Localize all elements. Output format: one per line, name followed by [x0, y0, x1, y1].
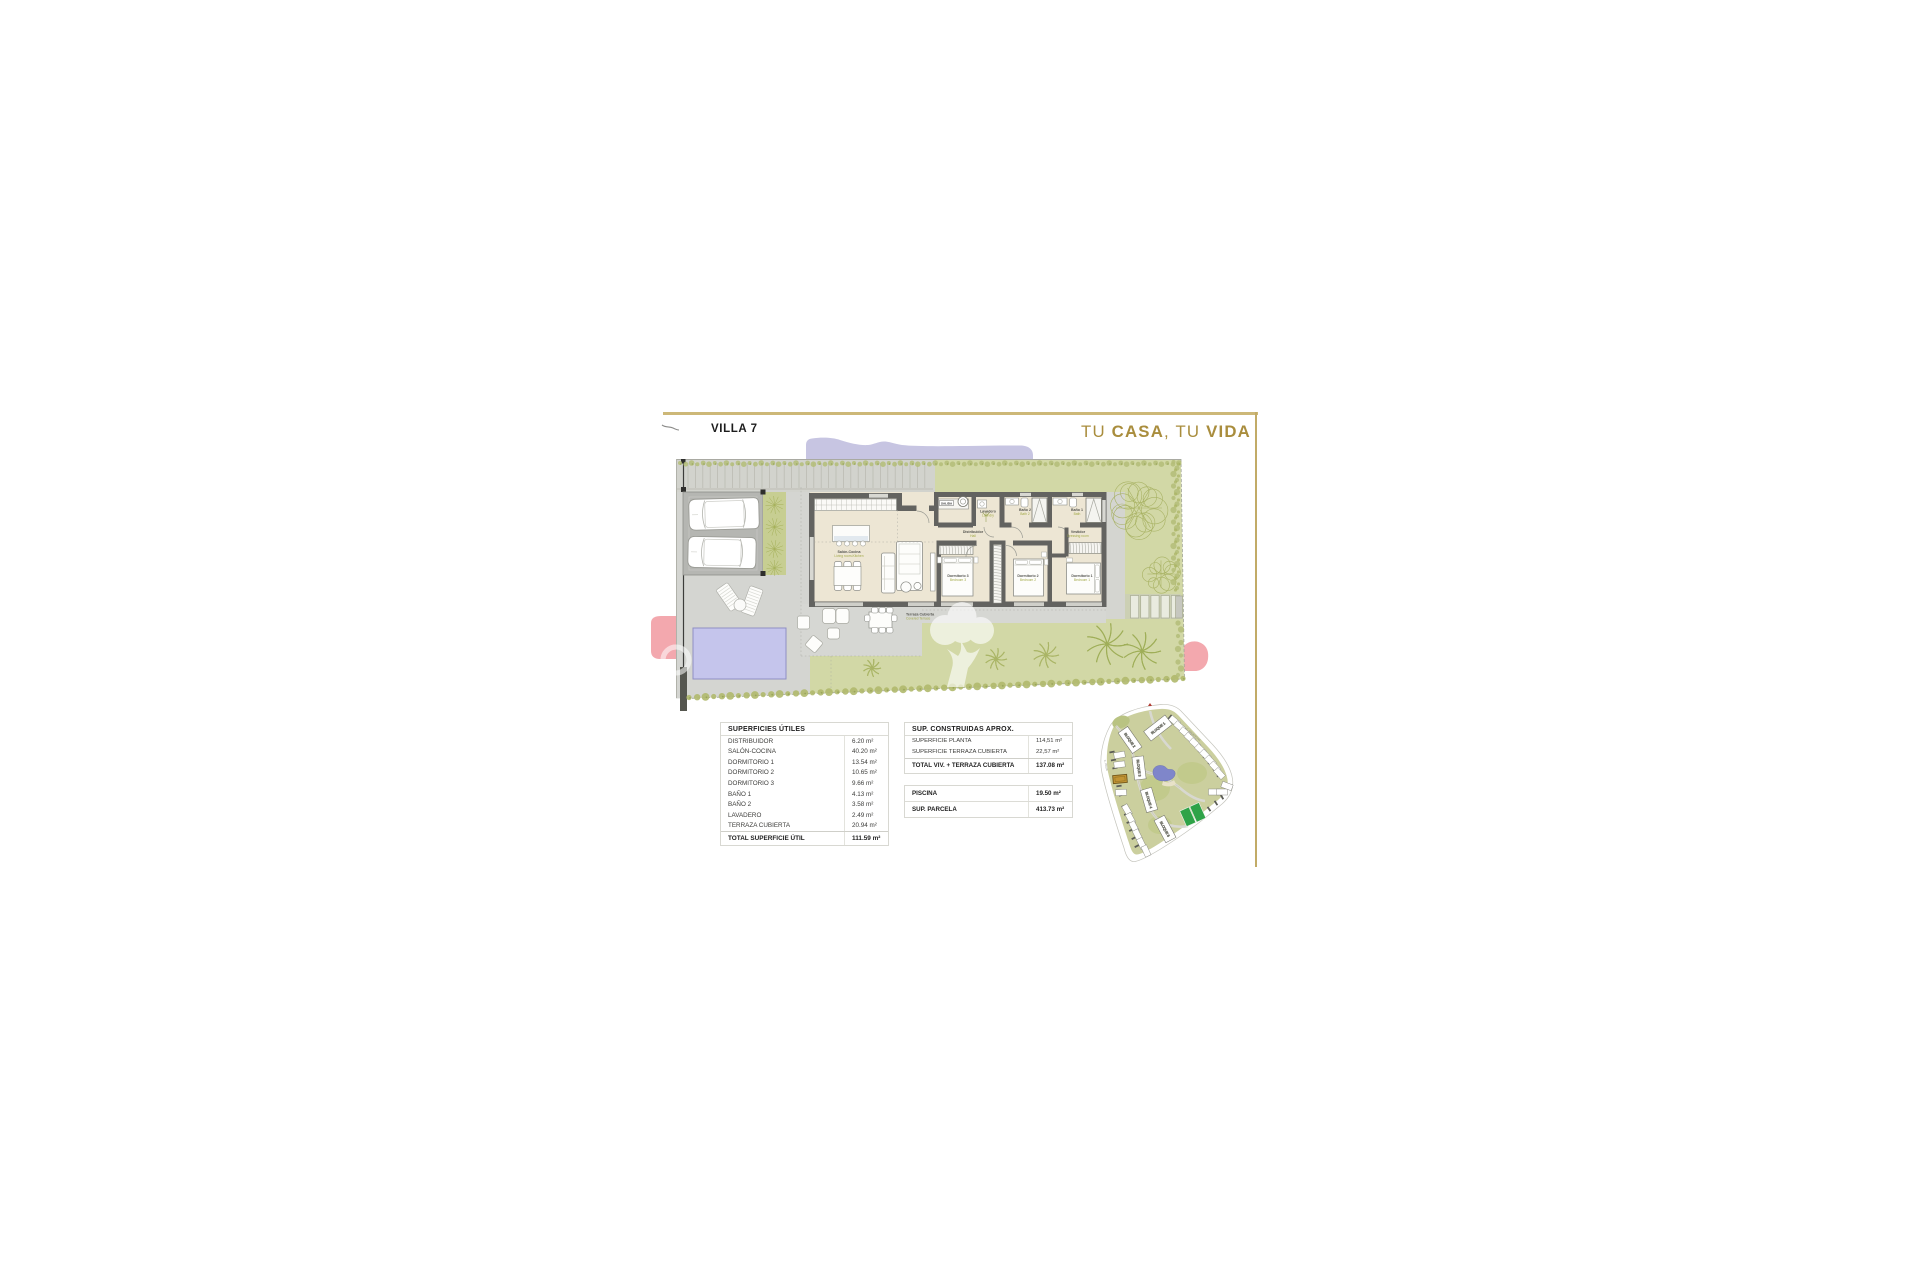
svg-text:Laundry: Laundry: [982, 514, 994, 518]
svg-text:Covered Terrace: Covered Terrace: [906, 617, 930, 621]
svg-text:Living room-Kitchen: Living room-Kitchen: [834, 554, 863, 558]
svg-text:Bath: Bath: [1074, 512, 1081, 516]
svg-text:Hall: Hall: [970, 534, 976, 538]
svg-text:Bedroom 3: Bedroom 3: [950, 578, 966, 582]
svg-text:Bath 2: Bath 2: [1020, 512, 1030, 516]
svg-text:Dressing room: Dressing room: [1067, 534, 1089, 538]
svg-text:Bedroom 1: Bedroom 1: [1074, 578, 1090, 582]
svg-text:Bedroom 2: Bedroom 2: [1020, 578, 1036, 582]
svg-text:SALIDA: SALIDA: [941, 501, 953, 505]
